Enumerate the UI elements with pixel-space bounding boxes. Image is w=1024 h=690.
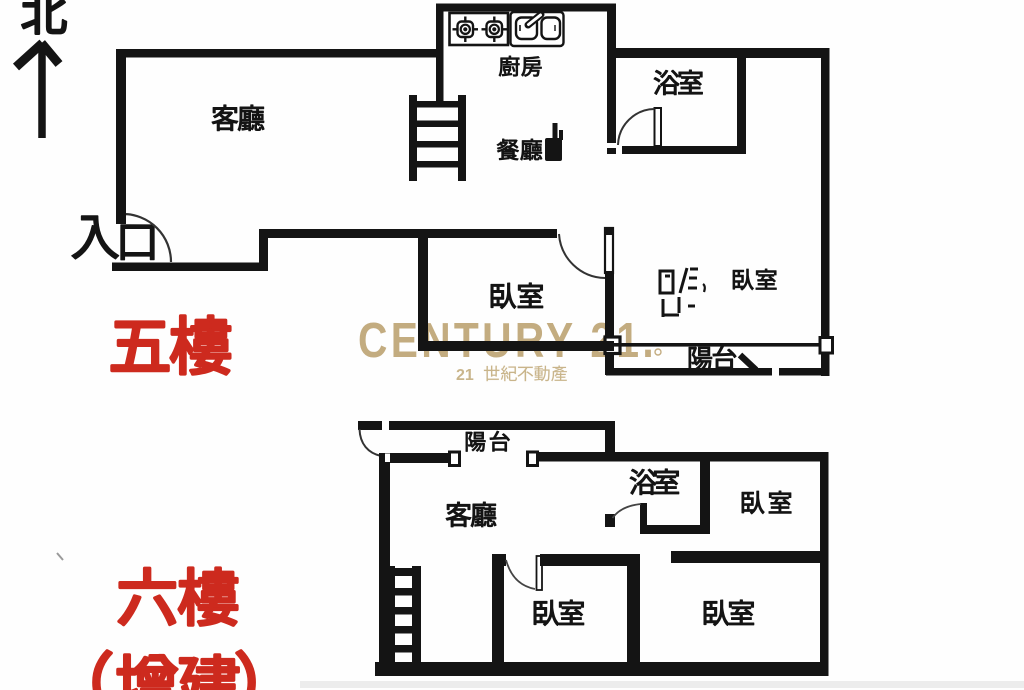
svg-text:21: 21 (456, 367, 474, 384)
